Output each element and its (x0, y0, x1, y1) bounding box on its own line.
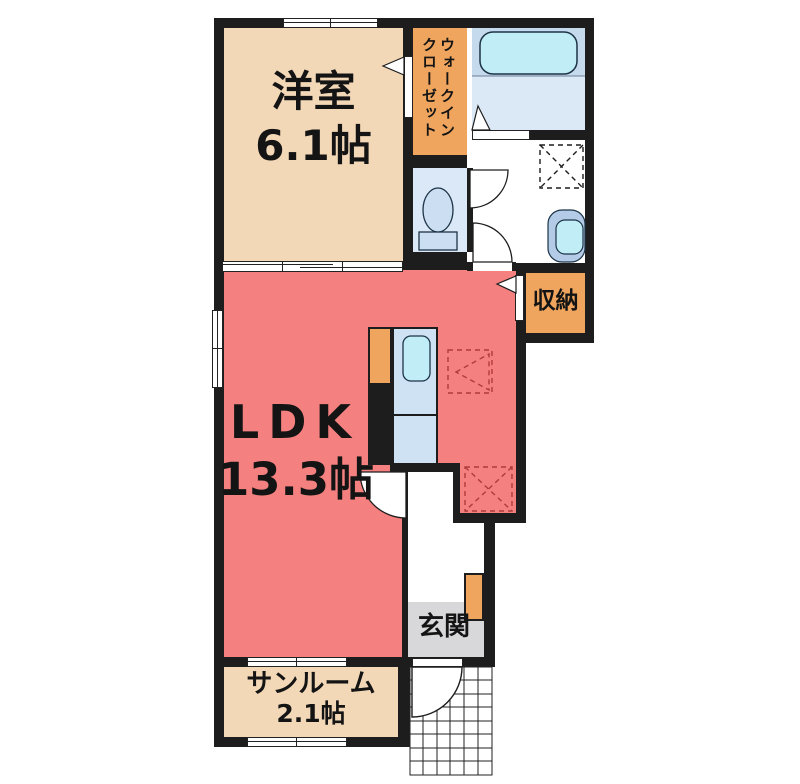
kitchen-counter (392, 327, 438, 465)
sliding-partition-line (300, 267, 402, 268)
wall (402, 667, 412, 718)
label-storage: 収納 (526, 289, 585, 313)
door-threshold-bath (472, 130, 530, 140)
label-sunroom-size: 2.1帖 (224, 701, 398, 727)
room-bath-lower (472, 76, 585, 130)
floor-plan: 洋室 6.1帖 ウォークイン クローゼット 収納 LDK 13.3帖 玄関 サン… (0, 0, 800, 784)
wall (585, 18, 594, 343)
sliding-partition-tick (282, 262, 283, 271)
label-ldk-size: 13.3帖 (196, 456, 396, 503)
wall (403, 252, 467, 270)
wall (453, 472, 460, 513)
room-ldk-nook (460, 463, 516, 513)
wall (214, 18, 594, 28)
door-leaf-closet (404, 56, 413, 118)
label-walk-in-closet-line2: クローゼット (419, 37, 440, 139)
label-ldk: LDK (200, 398, 390, 446)
window-sash-line (217, 311, 218, 387)
window-sash-tick (296, 737, 297, 747)
washing-machine-pan-icon (540, 145, 583, 188)
room-toilet (413, 168, 467, 252)
label-walk-in-closet-line1: ウォークイン (437, 37, 458, 139)
window-sash-line (248, 661, 346, 662)
door-threshold-washroom (473, 262, 512, 271)
window-sash-tick (330, 18, 331, 28)
kitchen-counter-divider (393, 414, 437, 416)
label-sunroom: サンルーム (224, 671, 398, 698)
window-sash-tick (212, 348, 223, 349)
entry-door-leaf (412, 658, 463, 667)
label-western-room-size: 6.1帖 (224, 124, 403, 168)
toilet-door-swing-icon (470, 170, 508, 208)
porch-tile-grid (410, 667, 492, 775)
wall (467, 168, 473, 252)
sliding-partition-tick (342, 262, 343, 271)
washroom-door-swing-icon (473, 223, 512, 262)
wall (530, 130, 585, 140)
window-sash-line (248, 741, 346, 742)
room-bath-upper (472, 28, 585, 76)
door-leaf-storage (515, 275, 524, 321)
window (247, 657, 347, 667)
wall (403, 155, 467, 168)
sliding-partition-line (223, 264, 333, 265)
kitchen-cabinet (368, 327, 392, 385)
window-sash-tick (296, 657, 297, 667)
label-entrance: 玄関 (404, 614, 484, 641)
washbasin-icon (548, 210, 585, 262)
wall (526, 263, 594, 273)
entry-door-swing-icon (412, 667, 462, 717)
window (247, 737, 347, 747)
wall (453, 513, 526, 523)
wall (516, 333, 594, 343)
wall (390, 463, 460, 472)
wall (484, 523, 495, 667)
label-western-room: 洋室 (224, 70, 403, 114)
